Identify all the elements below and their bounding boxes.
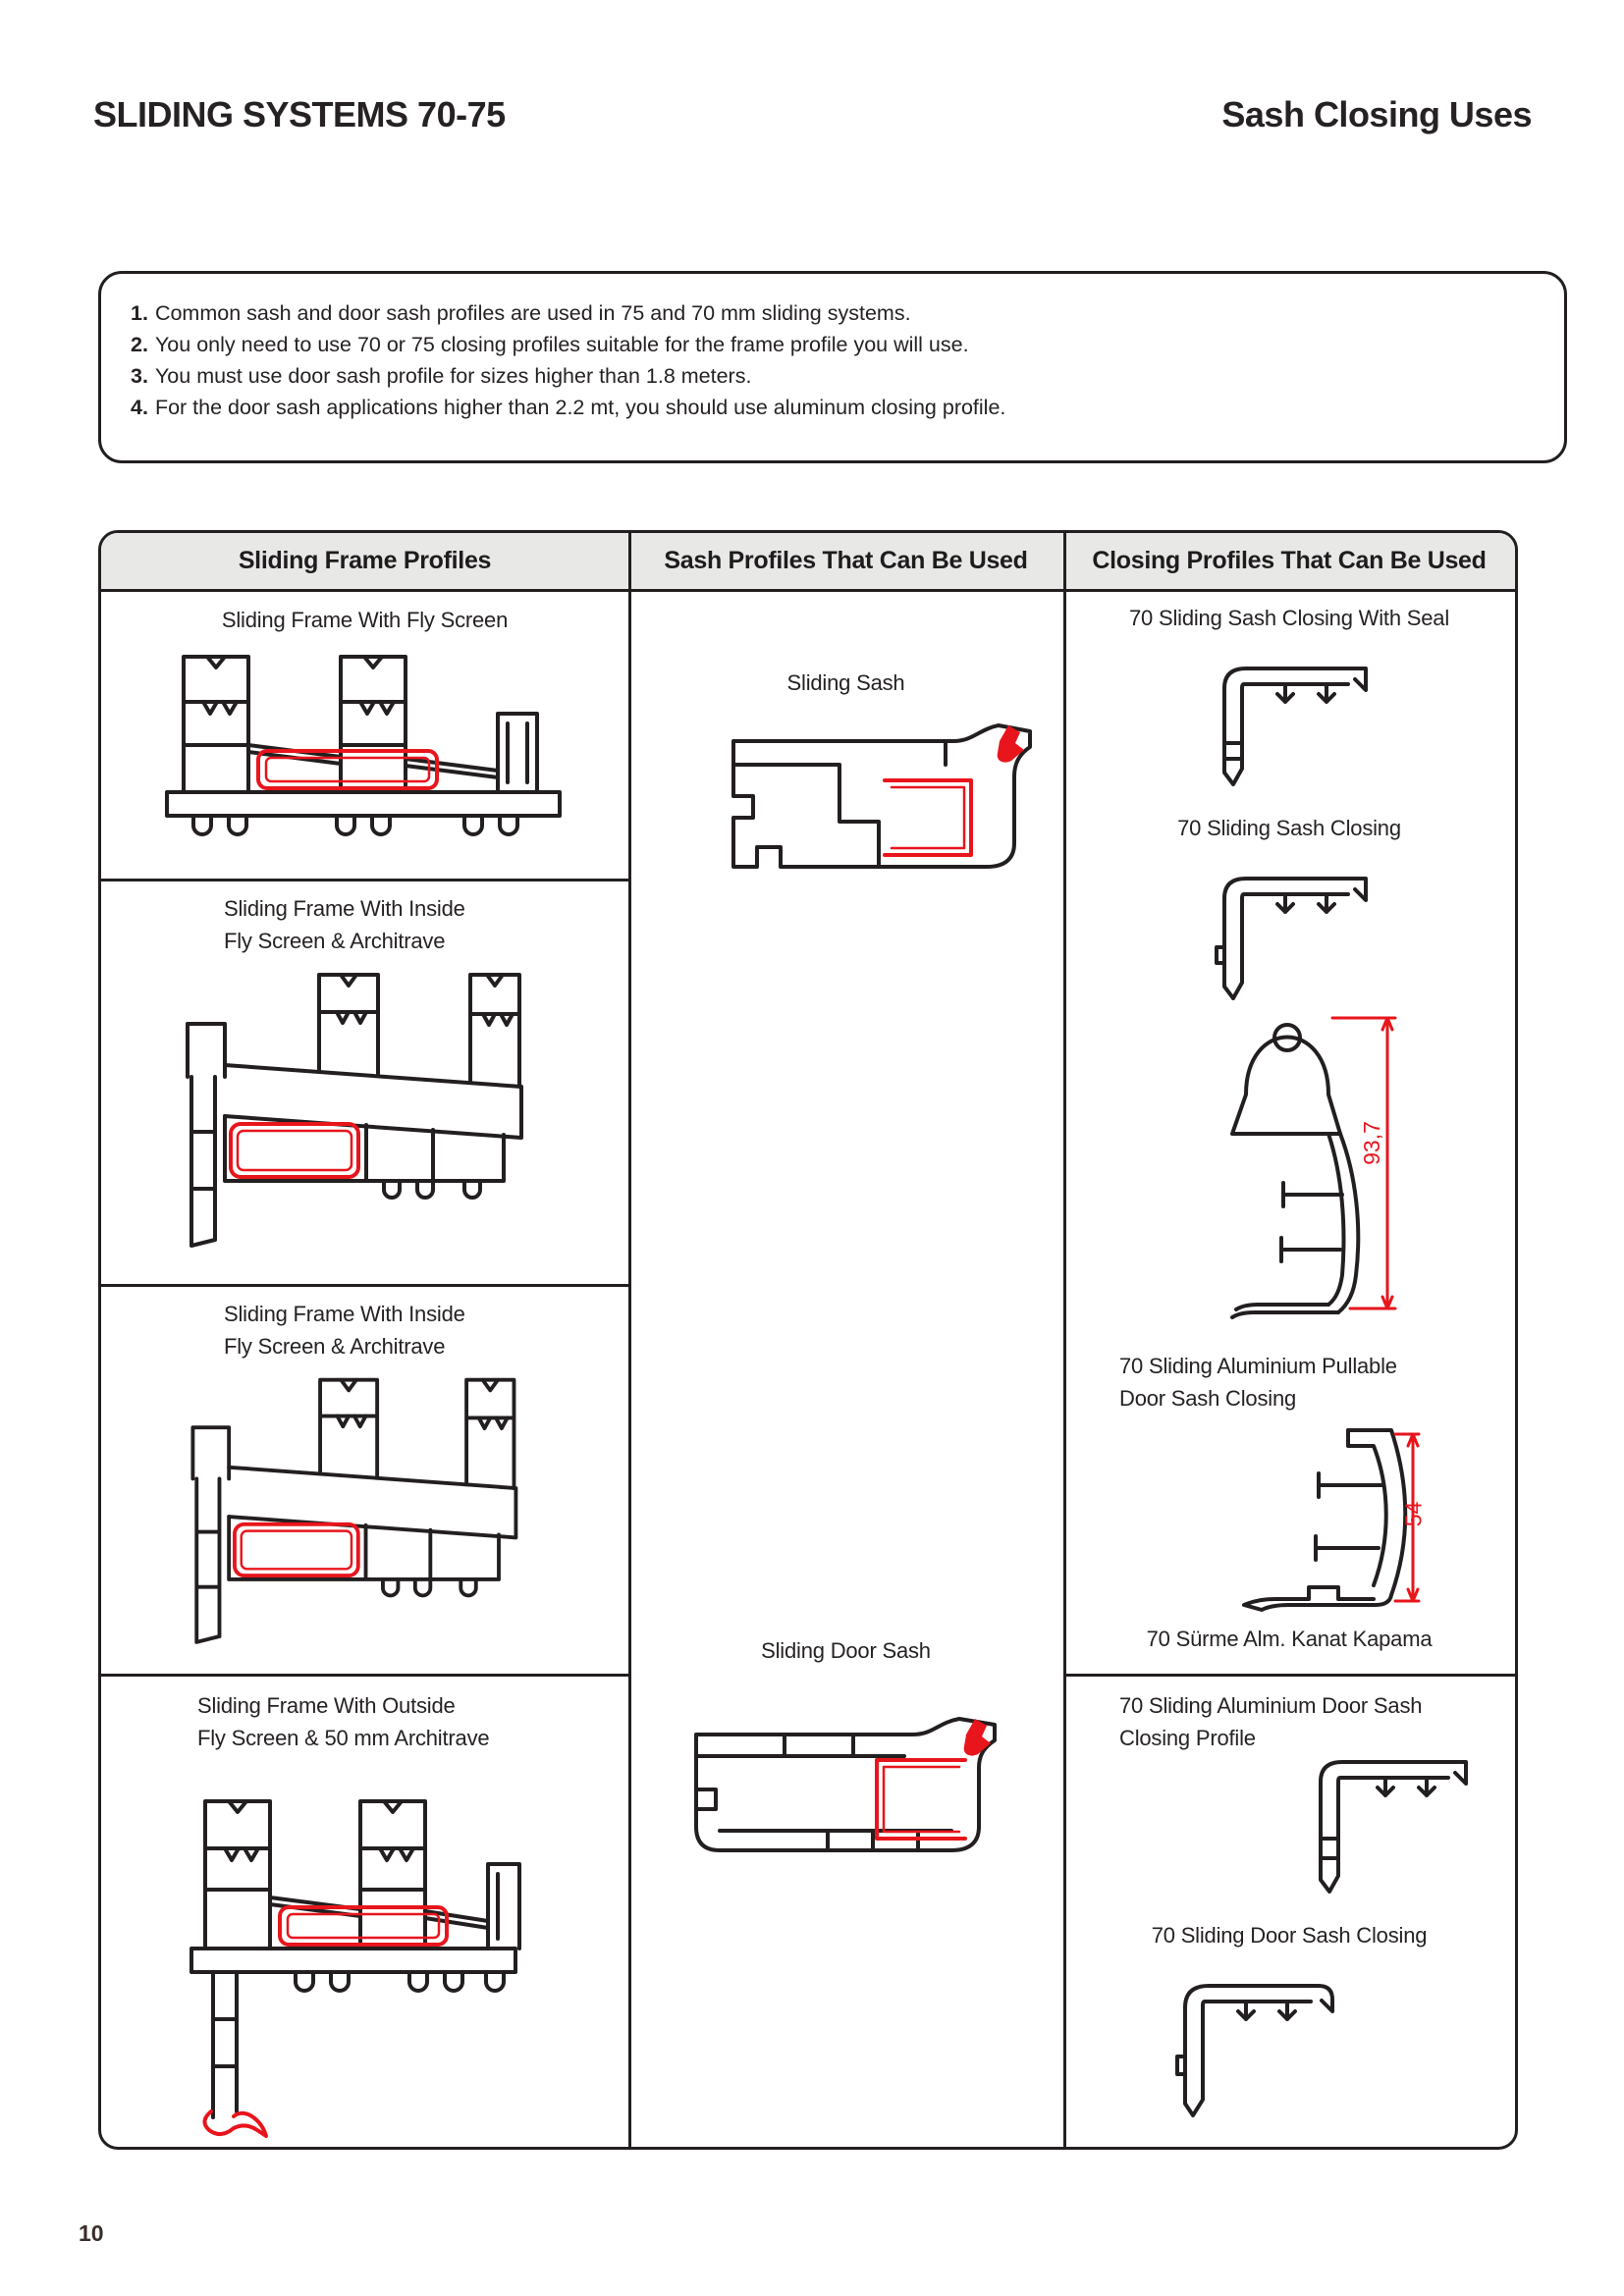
sliding-sash-label: Sliding Sash — [628, 667, 1063, 699]
sash-closing-with-seal-label: 70 Sliding Sash Closing With Seal — [1063, 602, 1515, 634]
note-line: 3.You must use door sash profile for siz… — [131, 360, 1544, 392]
note-number: 3. — [131, 364, 148, 388]
note-line: 2.You only need to use 70 or 75 closing … — [131, 329, 1544, 360]
row-divider — [101, 1674, 628, 1677]
aluminium-door-sash-closing-drawing — [1297, 1733, 1484, 1901]
label-line: Sliding Frame With Outside — [197, 1689, 489, 1722]
frame-inside-architrave-label-1: Sliding Frame With Inside Fly Screen & A… — [224, 892, 465, 957]
label-line: Door Sash Closing — [1119, 1382, 1397, 1415]
note-number: 2. — [131, 333, 148, 356]
frame-fly-screen-drawing — [152, 643, 574, 857]
surme-kanat-kapama-label: 70 Sürme Alm. Kanat Kapama — [1063, 1623, 1515, 1655]
note-text: Common sash and door sash profiles are u… — [155, 301, 911, 325]
note-line: 1.Common sash and door sash profiles are… — [131, 297, 1544, 329]
row-divider — [1063, 1674, 1515, 1677]
label-line: Sliding Frame With Inside — [224, 892, 465, 925]
aluminium-pullable-label: 70 Sliding Aluminium Pullable Door Sash … — [1119, 1350, 1397, 1415]
page-number: 10 — [79, 2220, 104, 2247]
note-text: You must use door sash profile for sizes… — [155, 364, 752, 388]
sliding-door-sash-drawing — [680, 1691, 1019, 1866]
note-number: 4. — [131, 396, 148, 419]
door-sash-closing-drawing — [1164, 1958, 1340, 2127]
note-text: For the door sash applications higher th… — [155, 396, 1005, 419]
label-line: 70 Sliding Aluminium Pullable — [1119, 1350, 1397, 1382]
column-divider-2 — [1063, 533, 1066, 2147]
note-number: 1. — [131, 301, 148, 325]
frame-inside-architrave-label-2: Sliding Frame With Inside Fly Screen & A… — [224, 1298, 465, 1362]
sash-closing-with-seal-drawing — [1201, 641, 1382, 786]
frame-inside-architrave-drawing-1 — [170, 967, 533, 1271]
row-divider — [101, 879, 628, 881]
door-sash-closing-label: 70 Sliding Door Sash Closing — [1063, 1919, 1515, 1951]
header-sash-profiles: Sash Profiles That Can Be Used — [628, 533, 1063, 589]
sliding-sash-drawing — [710, 702, 1049, 877]
row-divider — [101, 1284, 628, 1287]
notes-box: 1.Common sash and door sash profiles are… — [98, 271, 1567, 463]
profiles-table: Sliding Frame Profiles Sash Profiles Tha… — [98, 530, 1518, 2150]
label-line: Fly Screen & Architrave — [224, 1330, 465, 1362]
sliding-door-sash-label: Sliding Door Sash — [628, 1634, 1063, 1667]
note-text: You only need to use 70 or 75 closing pr… — [155, 333, 969, 356]
aluminium-pullable-drawing — [1199, 1416, 1430, 1613]
frame-fly-screen-label: Sliding Frame With Fly Screen — [101, 604, 628, 636]
label-line: Sliding Frame With Inside — [224, 1298, 465, 1330]
frame-outside-architrave-drawing — [162, 1762, 530, 2145]
dimension-93-7: 93,7 — [1359, 1121, 1385, 1165]
dimension-54: 54 — [1400, 1502, 1427, 1527]
section-title: Sash Closing Uses — [1221, 94, 1532, 135]
page-title: SLIDING SYSTEMS 70-75 — [93, 94, 506, 135]
frame-inside-architrave-drawing-2 — [170, 1372, 533, 1667]
column-divider-1 — [628, 533, 631, 2147]
sash-closing-label: 70 Sliding Sash Closing — [1063, 812, 1515, 844]
frame-outside-architrave-label: Sliding Frame With Outside Fly Screen & … — [197, 1689, 489, 1754]
label-line: 70 Sliding Aluminium Door Sash — [1119, 1689, 1422, 1722]
label-line: Fly Screen & 50 mm Architrave — [197, 1722, 489, 1754]
header-closing-profiles: Closing Profiles That Can Be Used — [1063, 533, 1515, 589]
note-line: 4.For the door sash applications higher … — [131, 392, 1544, 423]
label-line: Fly Screen & Architrave — [224, 925, 465, 957]
header-sliding-frame-profiles: Sliding Frame Profiles — [101, 533, 628, 589]
catalog-page: SLIDING SYSTEMS 70-75 Sash Closing Uses … — [0, 0, 1624, 2296]
sash-closing-drawing — [1201, 851, 1382, 1000]
